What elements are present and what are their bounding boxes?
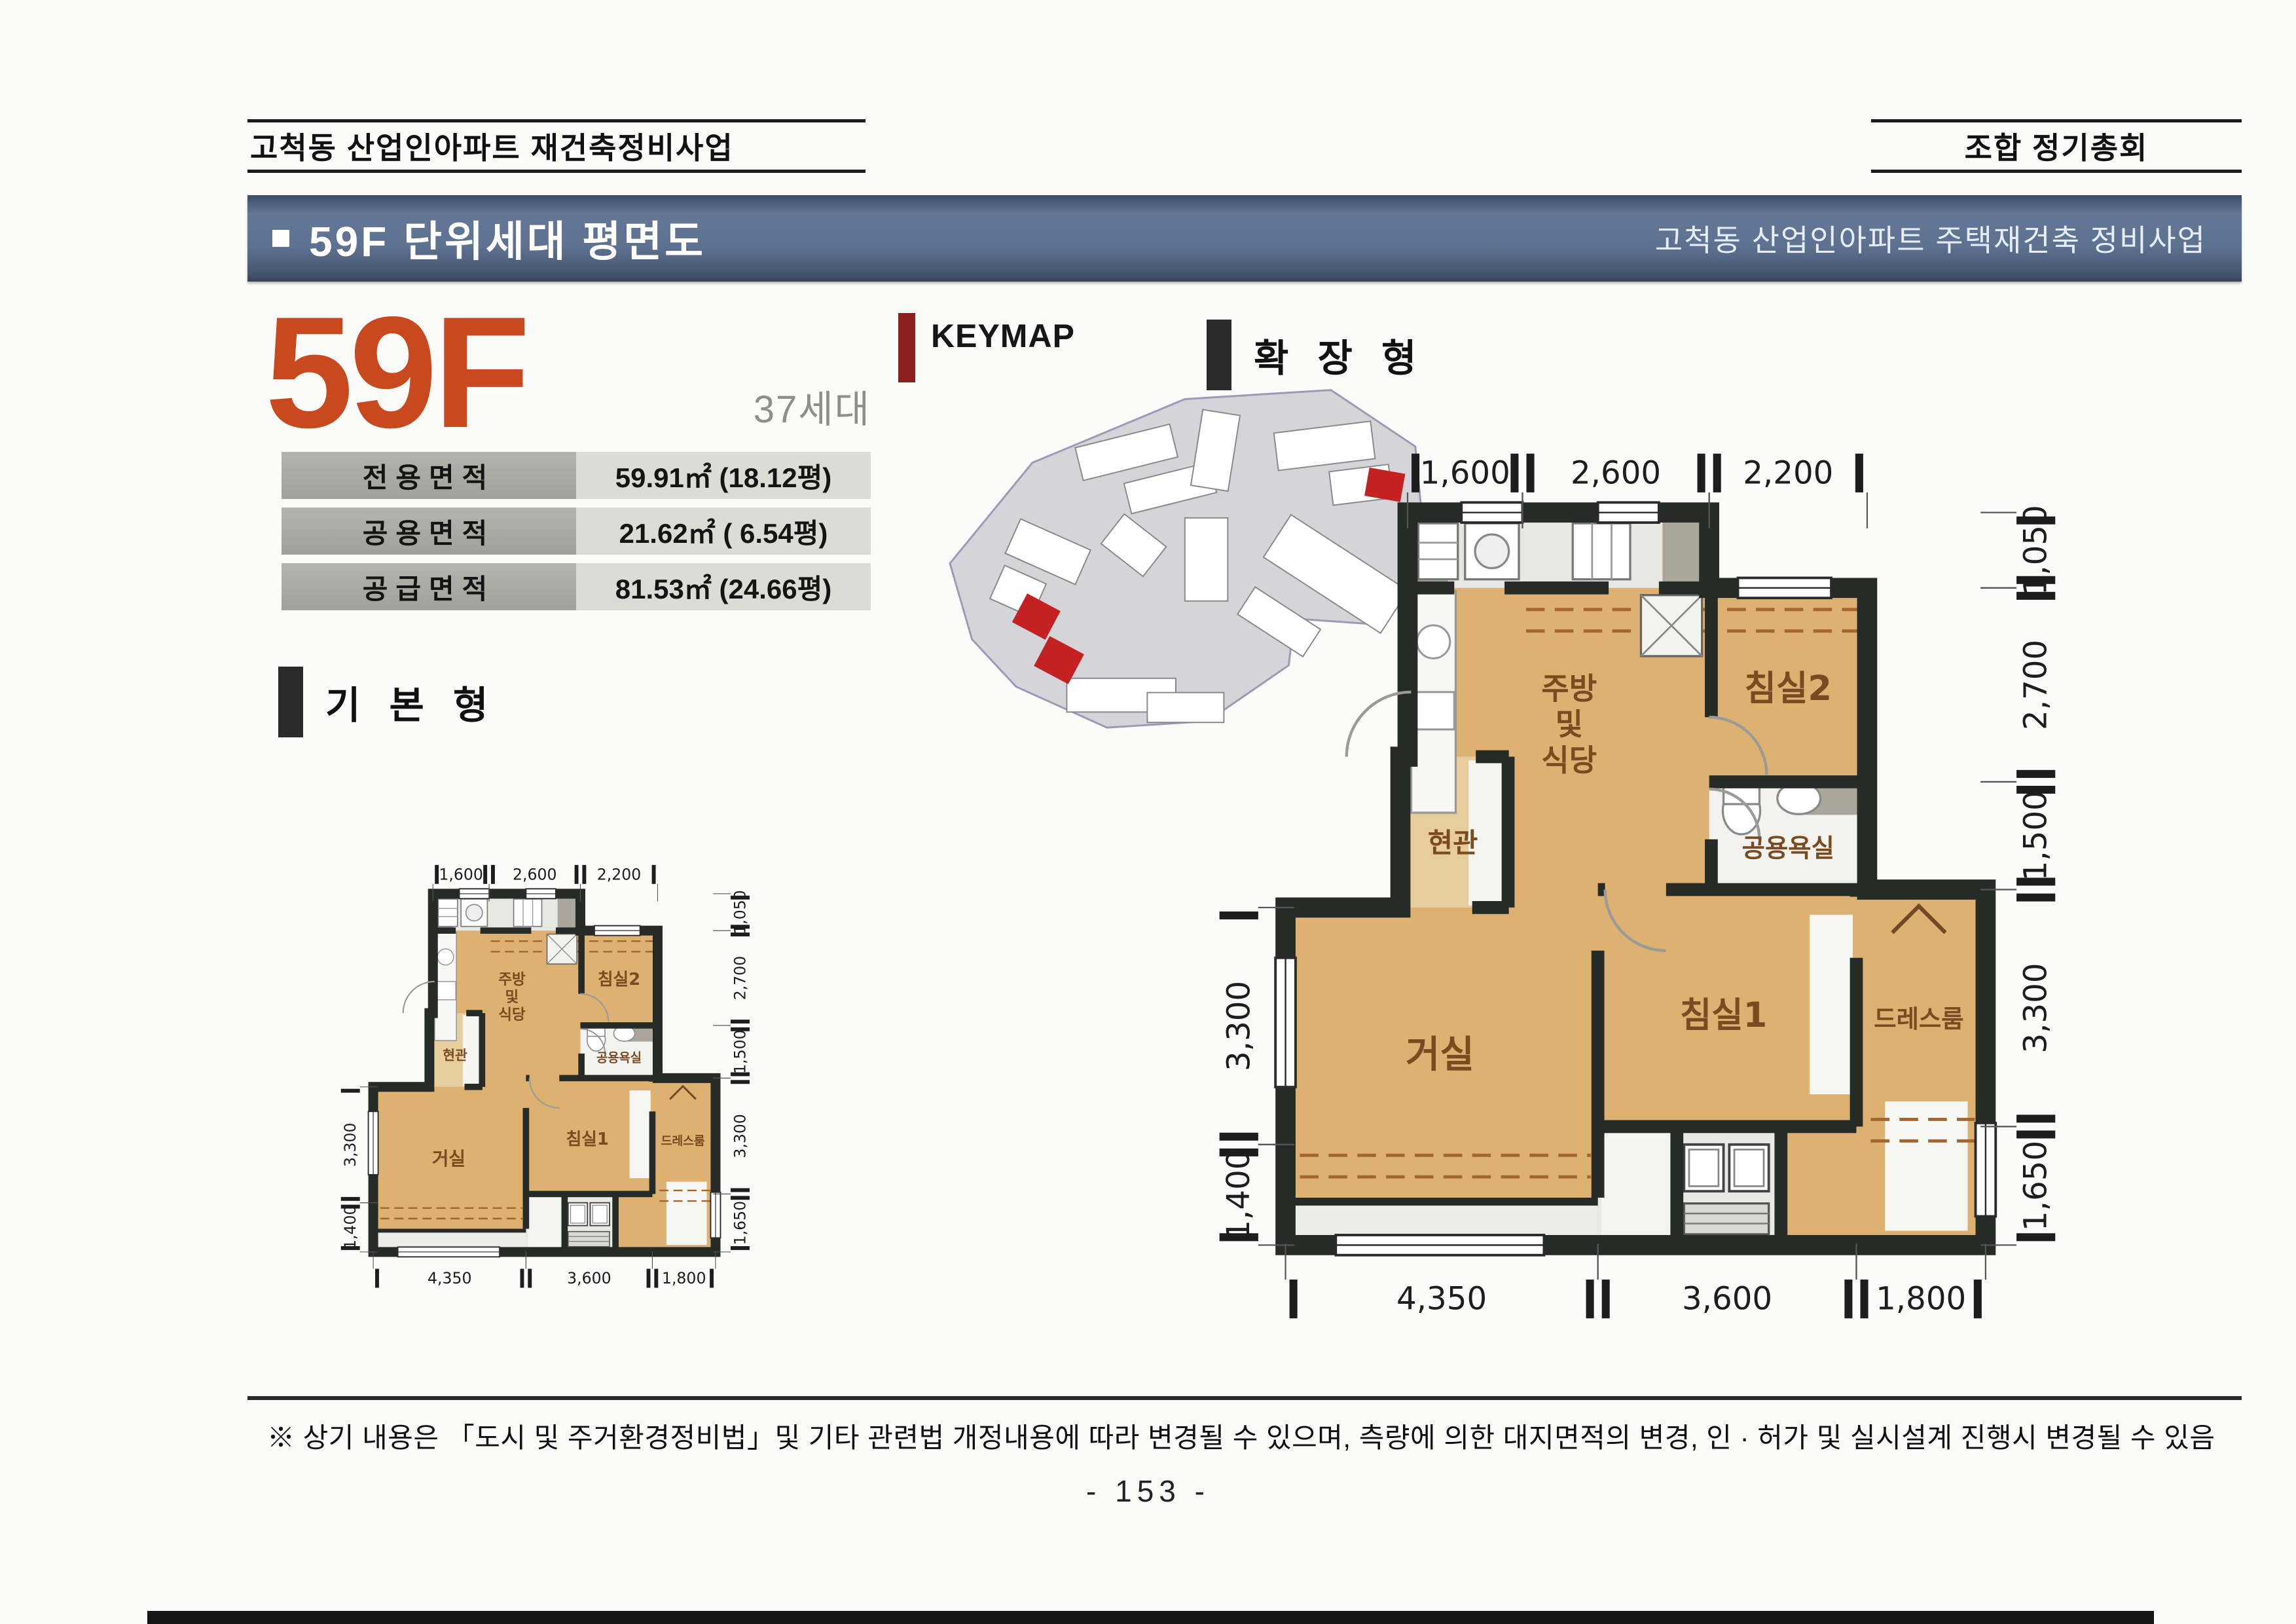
dim-label: 1,500 (2018, 790, 2054, 881)
room-label-bedroom2: 침실2 (598, 970, 640, 989)
room-label-kitchen: 주방 (498, 971, 526, 988)
floor-plan-expanded-svg: 주방및식당침실2현관공용욕실거실침실1드레스룸1,6002,6002,2004,… (1185, 419, 2075, 1346)
room-label-kitchen: 주방 (1541, 671, 1597, 706)
dim-label: 3,300 (341, 1123, 359, 1168)
area-table-row: 전용면적59.91㎡ (18.12평) (282, 452, 871, 499)
basic-label: 기 본 형 (325, 674, 497, 729)
scan-edge-strip (147, 1611, 2154, 1624)
room-label-kitchen: 및 (505, 989, 519, 1006)
dim-label: 3,300 (731, 1114, 750, 1158)
dim-label: 3,600 (1682, 1281, 1772, 1318)
title-bar: 59F 단위세대 평면도 고척동 산업인아파트 주택재건축 정비사업 (247, 195, 2242, 282)
dim-label: 3,300 (1220, 981, 1257, 1071)
room-label-bedroom1: 침실1 (1680, 995, 1767, 1035)
keymap-label: KEYMAP (931, 317, 1075, 355)
plan-type-expanded: 확 장 형 (1207, 320, 1425, 390)
title-bullet-icon (272, 230, 289, 247)
page-number: - 153 - (0, 1473, 2296, 1509)
area-row-value: 21.62㎡ ( 6.54평) (576, 507, 871, 555)
page-subtitle: 고척동 산업인아파트 주택재건축 정비사업 (1655, 217, 2206, 260)
floor-plan-basic: 주방및식당침실2현관공용욕실거실침실1드레스룸1,6002,6002,2004,… (324, 848, 759, 1301)
room-label-entrance: 현관 (1428, 827, 1478, 859)
dim-label: 1,050 (731, 890, 750, 934)
document-page: 고척동 산업인아파트 재건축정비사업 조합 정기총회 59F 단위세대 평면도 … (0, 0, 2296, 1624)
page-title: 59F 단위세대 평면도 (309, 208, 706, 268)
dim-label: 1,400 (341, 1206, 359, 1250)
room-label-bath: 공용욕실 (596, 1050, 642, 1065)
footer-note: ※ 상기 내용은 「도시 및 주거환경정비법」및 기타 관련법 개정내용에 따라… (267, 1416, 2264, 1456)
basic-accent-bar (278, 667, 303, 737)
area-row-label: 전용면적 (282, 452, 576, 499)
plan-type-basic: 기 본 형 (278, 667, 497, 737)
area-row-label: 공급면적 (282, 563, 576, 610)
area-row-value: 59.91㎡ (18.12평) (576, 452, 871, 499)
dim-label: 3,600 (567, 1269, 611, 1287)
dim-label: 4,350 (1396, 1281, 1487, 1318)
dim-label: 2,200 (1743, 454, 1833, 491)
floor-plan-basic-svg: 주방및식당침실2현관공용욕실거실침실1드레스룸1,6002,6002,2004,… (324, 848, 759, 1301)
dim-label: 2,200 (597, 865, 642, 883)
dim-label: 1,600 (439, 865, 483, 883)
dim-label: 3,300 (2018, 963, 2054, 1053)
unit-count: 37세대 (681, 378, 871, 434)
dim-label: 2,700 (2018, 640, 2054, 730)
footer-rule (247, 1396, 2242, 1400)
dim-label: 2,700 (731, 956, 750, 1001)
area-table-row: 공용면적21.62㎡ ( 6.54평) (282, 507, 871, 555)
expanded-label: 확 장 형 (1254, 327, 1425, 382)
dim-label: 1,400 (1220, 1150, 1257, 1240)
dim-label: 4,350 (428, 1269, 472, 1287)
dim-label: 2,600 (513, 865, 557, 883)
dim-label: 1,650 (731, 1201, 750, 1246)
area-table-row: 공급면적81.53㎡ (24.66평) (282, 563, 871, 610)
dim-label: 1,050 (2018, 505, 2054, 595)
room-label-bath: 공용욕실 (1742, 834, 1834, 863)
room-label-living: 거실 (1406, 1033, 1474, 1077)
room-label-dressroom: 드레스룸 (1874, 1005, 1963, 1033)
header-right: 조합 정기총회 (1871, 119, 2242, 173)
room-label-living: 거실 (432, 1148, 465, 1170)
dim-label: 1,600 (1420, 454, 1510, 491)
dim-label: 1,650 (2018, 1141, 2054, 1231)
room-label-entrance: 현관 (443, 1048, 467, 1063)
expanded-accent-bar (1207, 320, 1231, 390)
room-label-kitchen: 및 (1556, 707, 1583, 742)
dim-label: 1,800 (662, 1269, 706, 1287)
dim-label: 1,500 (731, 1029, 750, 1074)
dim-label: 1,800 (1876, 1281, 1966, 1318)
room-label-dressroom: 드레스룸 (661, 1134, 705, 1148)
room-label-bedroom2: 침실2 (1745, 669, 1832, 709)
room-label-kitchen: 식당 (1541, 743, 1597, 778)
room-label-bedroom1: 침실1 (566, 1130, 609, 1149)
dim-label: 2,600 (1571, 454, 1661, 491)
area-table: 전용면적59.91㎡ (18.12평)공용면적21.62㎡ ( 6.54평)공급… (282, 452, 871, 619)
room-label-kitchen: 식당 (498, 1006, 526, 1024)
unit-code: 59F (265, 293, 526, 452)
area-row-value: 81.53㎡ (24.66평) (576, 563, 871, 610)
floor-plan-expanded: 주방및식당침실2현관공용욕실거실침실1드레스룸1,6002,6002,2004,… (1185, 419, 2075, 1346)
header-left: 고척동 산업인아파트 재건축정비사업 (247, 119, 866, 173)
area-row-label: 공용면적 (282, 507, 576, 555)
